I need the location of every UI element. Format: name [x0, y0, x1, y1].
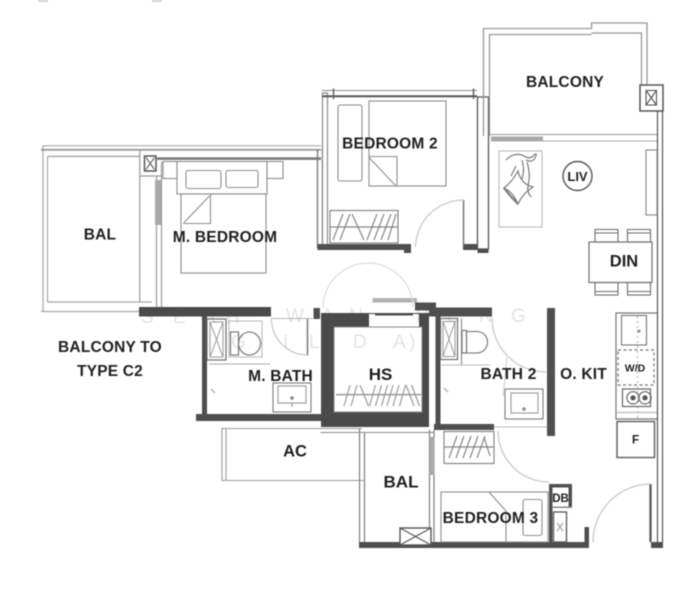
svg-text:N: N [479, 306, 493, 327]
svg-text:BEDROOM 3: BEDROOM 3 [443, 510, 539, 527]
svg-text:A: A [393, 332, 406, 353]
svg-text:W: W [286, 306, 304, 327]
svg-text:BATH 2: BATH 2 [480, 366, 536, 383]
svg-text:M. BEDROOM: M. BEDROOM [173, 229, 277, 246]
svg-text:AC: AC [283, 443, 307, 461]
svg-text:DB: DB [552, 493, 569, 505]
svg-text:A: A [321, 306, 334, 327]
svg-text:W/D: W/D [625, 363, 646, 375]
svg-text:A: A [203, 307, 216, 328]
svg-text:HS: HS [369, 365, 393, 384]
svg-text:E: E [173, 307, 186, 328]
svg-text:BALCONY: BALCONY [526, 74, 604, 91]
svg-text:S: S [141, 307, 154, 328]
svg-text:G: G [511, 306, 526, 327]
svg-text:D: D [353, 332, 367, 353]
svg-text:P: P [416, 306, 429, 327]
svg-text:L: L [309, 332, 320, 353]
svg-text:BAL: BAL [84, 227, 116, 244]
svg-text:H: H [226, 307, 240, 328]
svg-text:O. KIT: O. KIT [560, 366, 607, 383]
svg-text:): ) [409, 332, 415, 353]
svg-text:E: E [447, 306, 460, 327]
svg-text:TYPE C2: TYPE C2 [77, 363, 143, 380]
svg-text:M. BATH: M. BATH [248, 368, 313, 385]
svg-text:BEDROOM 2: BEDROOM 2 [342, 136, 438, 153]
svg-text:DIN: DIN [610, 253, 638, 271]
svg-text:BALCONY TO: BALCONY TO [58, 339, 162, 356]
svg-text:N: N [349, 306, 363, 327]
svg-text:I: I [283, 332, 288, 353]
svg-text:F: F [632, 435, 639, 447]
svg-text:BAL: BAL [384, 473, 419, 492]
svg-text:G: G [231, 332, 246, 353]
svg-text:LIV: LIV [567, 169, 588, 184]
